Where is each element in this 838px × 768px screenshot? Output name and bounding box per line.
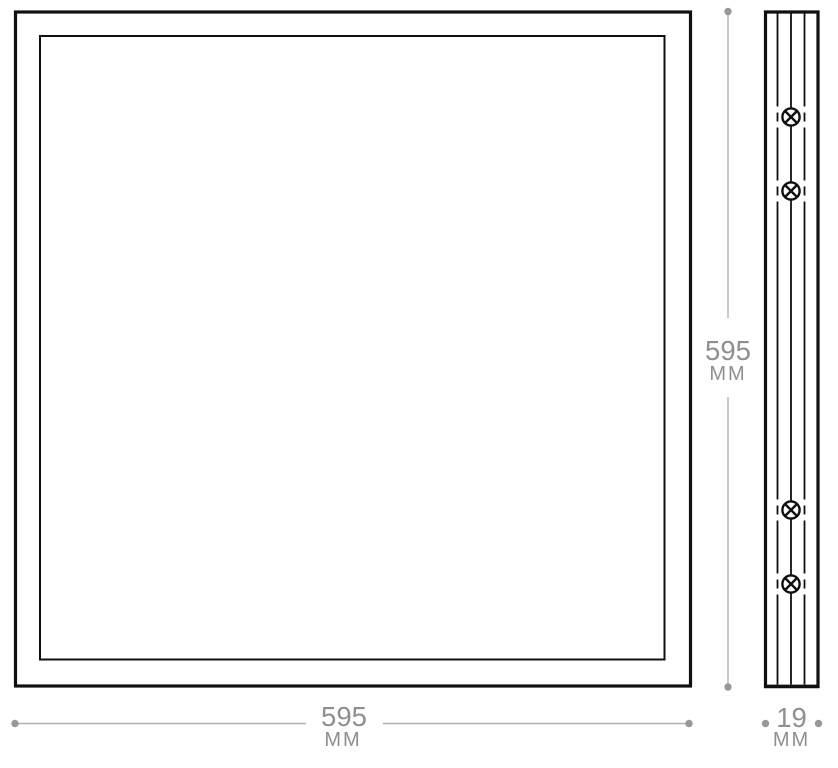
svg-text:595: 595	[321, 701, 367, 732]
svg-text:ММ: ММ	[709, 363, 746, 385]
svg-text:595: 595	[705, 335, 751, 366]
svg-text:ММ: ММ	[773, 729, 810, 751]
svg-text:ММ: ММ	[324, 729, 361, 751]
